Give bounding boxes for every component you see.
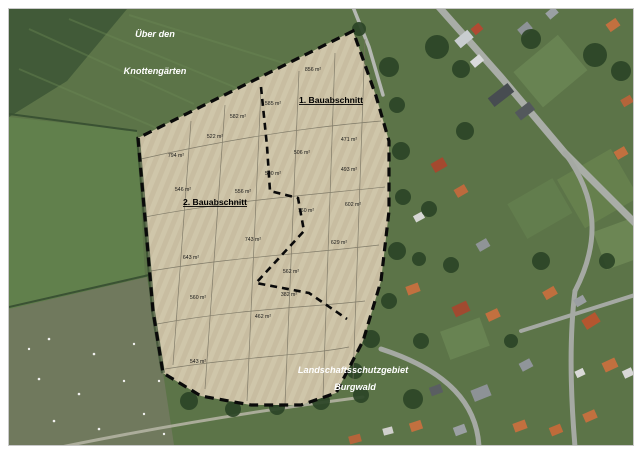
parcel-area-label: 522 m² <box>207 134 223 140</box>
parcel-area-label: 602 m² <box>345 202 361 208</box>
parcel-area-label: 562 m² <box>283 269 299 275</box>
parcel-area-label: 760 m² <box>298 208 314 214</box>
parcel-area-label: 543 m² <box>190 359 206 365</box>
phase-1-label: 1. Bauabschnitt <box>299 95 363 105</box>
screenshot-stage: 856 m² 585 m² 582 m² 522 m² 471 m² 794 m… <box>0 0 640 452</box>
parcel-area-label: 585 m² <box>265 101 281 107</box>
parcel-area-label: 582 m² <box>230 114 246 120</box>
parcel-area-label: 629 m² <box>331 240 347 246</box>
parcel-area-label: 500 m² <box>265 171 281 177</box>
field-name-ueber-den: Über den <box>135 29 175 39</box>
parcel-area-label: 643 m² <box>183 255 199 261</box>
parcel-area-label: 560 m² <box>190 295 206 301</box>
parcel-area-label: 382 m² <box>281 292 297 298</box>
parcel-area-label: 556 m² <box>235 189 251 195</box>
parcel-area-label: 493 m² <box>341 167 357 173</box>
phase-2-label: 2. Bauabschnitt <box>183 197 247 207</box>
field-name-knottengaerten: Knottengärten <box>124 66 187 76</box>
parcel-area-label: 546 m² <box>175 187 191 193</box>
field-name-burgwald: Burgwald <box>334 382 376 392</box>
parcel-area-label: 743 m² <box>245 237 261 243</box>
parcel-area-label: 794 m² <box>168 153 184 159</box>
parcel-area-label: 471 m² <box>341 137 357 143</box>
parcel-area-label: 856 m² <box>305 67 321 73</box>
parcel-area-label: 462 m² <box>255 314 271 320</box>
parcel-area-label: 506 m² <box>294 150 310 156</box>
aerial-photo-svg: 856 m² 585 m² 582 m² 522 m² 471 m² 794 m… <box>9 9 633 445</box>
field-name-landschaftsschutzgebiet: Landschaftsschutzgebiet <box>298 365 409 375</box>
aerial-photo: 856 m² 585 m² 582 m² 522 m² 471 m² 794 m… <box>8 8 634 446</box>
